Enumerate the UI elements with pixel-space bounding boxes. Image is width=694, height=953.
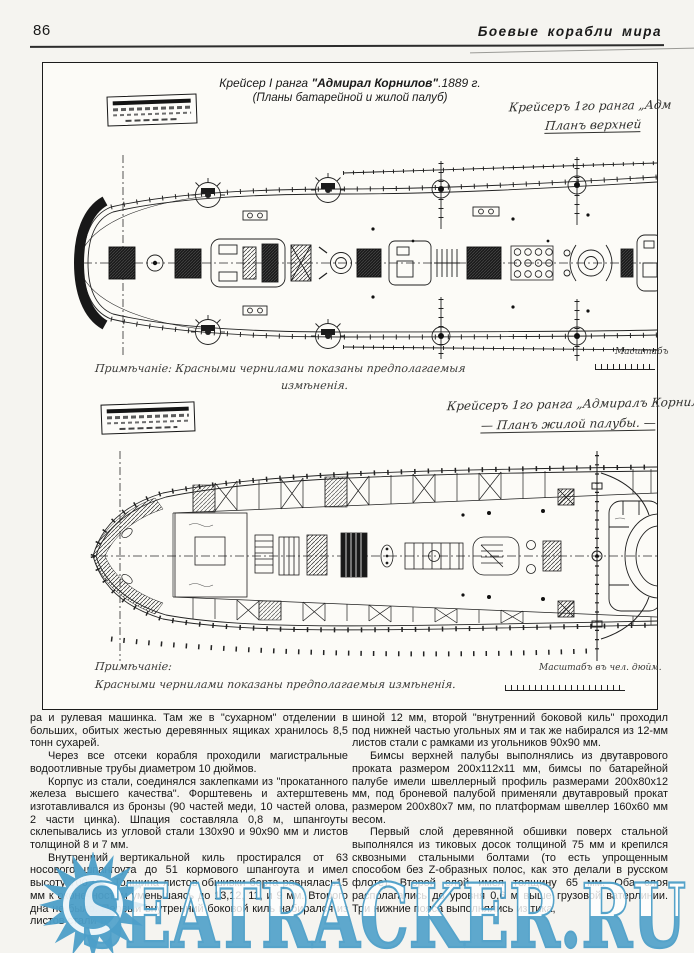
archive-stamp-2 (101, 401, 196, 434)
archive-stamp-1 (107, 93, 198, 126)
engine-skylight-bars (434, 249, 460, 277)
body-paragraph: Внутренний вертикальной киль простирался… (30, 852, 348, 928)
plan1-note-line2: измѣненія. (280, 379, 348, 392)
body-paragraph: Корпус из стали, соединялся заклепками и… (30, 776, 348, 852)
stamp-signature-line (125, 118, 180, 122)
battery-deck-plan-drawing (43, 149, 657, 363)
cabin-bands (173, 469, 657, 625)
stamp-signature-line (120, 426, 177, 430)
small-grating (621, 249, 633, 277)
stanchion-dots (461, 509, 545, 601)
hatch-grating (543, 541, 561, 571)
figure-title-ship-name: "Адмирал Корнилов" (311, 76, 438, 90)
body-paragraph: шиной 12 мм, второй "внутренний боковой … (352, 712, 668, 750)
article-right-column: шиной 12 мм, второй "внутренний боковой … (352, 712, 668, 915)
running-title: Боевые корабли мира (478, 24, 662, 39)
skylight-grating (175, 249, 201, 278)
figure-title-suffix: .1889 г. (438, 76, 481, 90)
stamp-text-line (113, 106, 191, 111)
plan1-scale-label: Масштабъ (615, 347, 669, 357)
figure-frame: Крейсер I ранга "Адмирал Корнилов".1889 … (42, 62, 658, 710)
plan1-scale-bar (595, 364, 655, 370)
body-paragraph: Через все отсеки корабля проходили магис… (30, 750, 348, 775)
plan2-handwritten-subcaption: — Планъ жилой палубы. — (480, 415, 656, 433)
companionway-stairs (255, 535, 273, 573)
station-number-ticks (111, 639, 588, 654)
scanned-book-page: { "page": { "number": "86", "running_tit… (0, 0, 694, 953)
article-left-column: ра и рулевая машинка. Там же в "сухарном… (30, 712, 348, 928)
boiler-grating (467, 247, 501, 279)
davit-arc (601, 597, 649, 639)
plan1-note: Примѣчаніе: Красными чернилами показаны … (94, 362, 466, 375)
plan2-scale-bar (505, 685, 625, 691)
hatch-with-cross (291, 245, 311, 281)
body-paragraph: ра и рулевая машинка. Там же в "сухарном… (30, 712, 348, 750)
plan1-handwritten-caption: Крейсеръ 1го ранга „Адм (508, 98, 672, 115)
figure-title-prefix: Крейсер I ранга (219, 76, 311, 90)
stamp-text-line (113, 99, 191, 106)
living-deck-plan-drawing (43, 449, 657, 664)
dark-grating (341, 533, 367, 577)
plan2-note-line2: Красными чернилами показаны предполагаем… (94, 678, 456, 691)
header-rule-scan-artifact (470, 48, 694, 54)
header-rule (30, 44, 664, 48)
skylight-grating (357, 249, 381, 277)
figure-title: Крейсер I ранга "Адмирал Корнилов".1889 … (43, 76, 657, 90)
plan2-note: Примѣчаніе: (94, 660, 172, 673)
deck-fittings (109, 207, 657, 315)
plan2-scale-label: Масштабъ въ чел. дюйм. (539, 663, 662, 673)
plan1-handwritten-subcaption: Планъ верхней (544, 117, 642, 134)
stamp-text-line (107, 407, 189, 414)
plan2-handwritten-caption: Крейсеръ 1го ранга „Адмиралъ Корнил (446, 395, 694, 413)
body-paragraph: Первый слой деревянной обшивки поверх ст… (352, 826, 668, 915)
page-number: 86 (33, 22, 51, 39)
skylight-grating (109, 247, 135, 279)
body-paragraph: Бимсы верхней палубы выполнялись из двут… (352, 750, 668, 826)
stamp-text-line (107, 414, 189, 419)
stamp-text-line (107, 419, 189, 424)
corridor-fittings (175, 489, 574, 617)
stamp-text-line (113, 111, 191, 116)
wardroom (175, 513, 247, 597)
hatch-grating (307, 535, 327, 575)
